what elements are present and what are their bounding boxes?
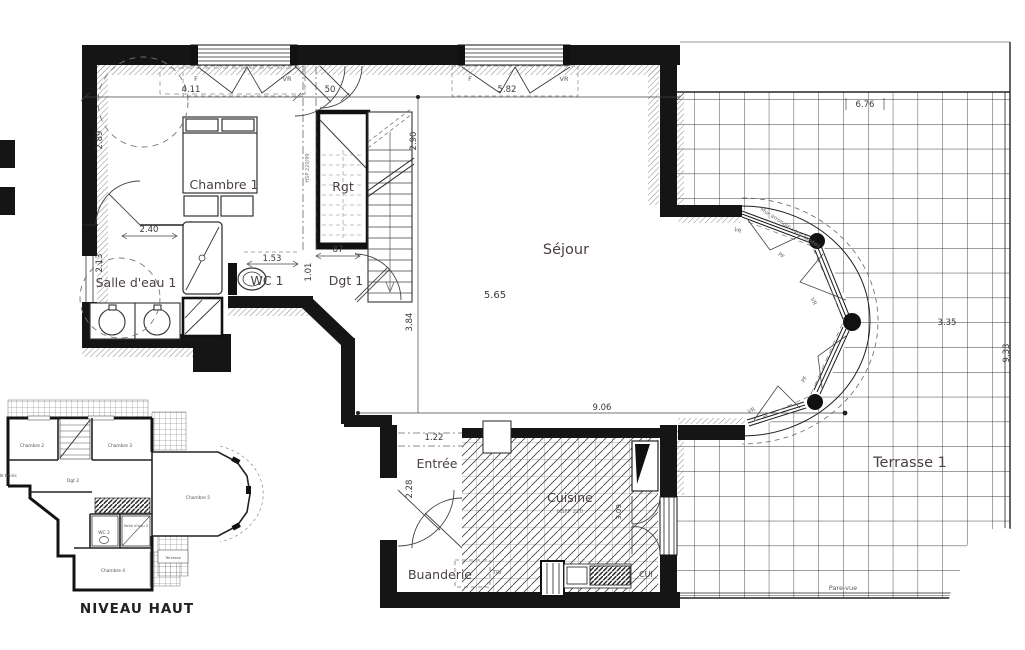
cui-label: CUI <box>639 570 653 579</box>
window-f-label: F <box>468 75 472 83</box>
window-vr-label: VR <box>560 75 569 83</box>
double-washbasin-icon <box>90 303 180 339</box>
dim-335: 3.35 <box>938 318 957 328</box>
hsfp-label: HSFP 220 <box>557 509 584 515</box>
terrace-wall-window <box>660 497 677 555</box>
dim-153: 1.53 <box>263 254 282 264</box>
dim-289: 2.89 <box>95 131 105 150</box>
sink-icon <box>567 567 587 584</box>
hsp-label: HSP 220/99 <box>305 153 311 182</box>
room-label-sejour: Séjour <box>543 242 589 258</box>
mini-label-chambre2: Chambre 2 <box>20 443 44 449</box>
dim-906: 9.06 <box>593 403 612 413</box>
mini-terrace-band <box>8 400 148 418</box>
room-label-cuisine: Cuisine <box>547 490 593 505</box>
mini-label-chambre4: Chambre 4 <box>101 568 125 574</box>
duct-box <box>483 421 511 453</box>
mini-label-terrasse: Terrasse <box>164 555 181 560</box>
pare-vue-label: Pare-vue <box>829 584 857 592</box>
floor-plan-canvas: Chambre 1 Rgt Salle d'eau 1 WC 1 Dgt 1 S… <box>0 0 1025 650</box>
dim-101: 1.01 <box>304 263 314 282</box>
dim-290: 2.90 <box>409 132 419 151</box>
dim-933: 9.33 <box>1002 344 1012 363</box>
bay-post <box>843 313 861 331</box>
mini-label-wc2: WC 2 <box>98 530 110 536</box>
kitchen-window <box>541 561 564 596</box>
room-label-buanderie: Buanderie <box>408 567 472 582</box>
room-label-entree: Entrée <box>417 456 458 471</box>
dim-309: 3.09 <box>615 504 623 520</box>
floor-plan-drawing: Chambre 1 Rgt Salle d'eau 1 WC 1 Dgt 1 S… <box>0 0 1025 650</box>
mini-label-dgt2: Dgt 2 <box>67 478 79 484</box>
cooktop-icon <box>590 566 630 585</box>
mini-label-chambre5: Chambre 5 <box>186 495 210 501</box>
tri-label: TRI <box>492 570 502 576</box>
room-label-terrasse1: Terrasse 1 <box>872 455 947 471</box>
mini-stairs-icon <box>60 419 90 459</box>
dim-50: 50 <box>325 85 336 95</box>
room-label-salle-eau: Salle d'eau 1 <box>96 275 177 290</box>
dim-228: 2.28 <box>405 480 415 499</box>
bay-post <box>807 394 823 410</box>
dim-122: 1.22 <box>425 433 444 443</box>
room-label-chambre1: Chambre 1 <box>190 177 259 192</box>
cabinet-icon <box>183 298 222 336</box>
mini-duct <box>95 498 150 513</box>
bed-icon <box>183 117 257 216</box>
room-label-rgt: Rgt <box>332 179 354 194</box>
dim-582: 5.82 <box>498 85 517 95</box>
window-f-label: F <box>194 75 198 83</box>
dim-dot <box>843 411 848 416</box>
shower-icon <box>183 222 222 294</box>
dim-411: 4.11 <box>182 85 201 95</box>
mini-label-chambre3: Chambre 3 <box>108 443 132 449</box>
room-label-wc1: WC 1 <box>250 273 283 288</box>
stairs-icon <box>366 108 414 302</box>
window-vr-label: VR <box>283 75 292 83</box>
mini-plan-caption: NIVEAU HAUT <box>80 601 194 617</box>
dim-676: 6.76 <box>856 100 875 110</box>
dim-87: 87 <box>333 245 344 255</box>
mini-plan: Chambre 2 Chambre 3 Dgt 2 WC 2 Salle d'e… <box>0 400 263 617</box>
mini-label-salle-bains: Salle de bains <box>0 473 17 479</box>
room-label-dgt1: Dgt 1 <box>329 273 363 288</box>
dim-384: 3.84 <box>405 313 415 332</box>
mini-label-salle-eau2: Salle d'eau 2 <box>124 523 149 528</box>
mini-bay <box>152 446 263 542</box>
fridge-icon <box>632 441 658 491</box>
diagonal-wall <box>306 302 350 344</box>
dim-dot <box>356 411 360 415</box>
dim-565: 5.65 <box>484 290 506 301</box>
dim-dot <box>416 95 420 99</box>
dim-213: 2.13 <box>95 254 105 273</box>
kitchen-counter <box>564 564 631 588</box>
dim-240: 2.40 <box>140 225 159 235</box>
